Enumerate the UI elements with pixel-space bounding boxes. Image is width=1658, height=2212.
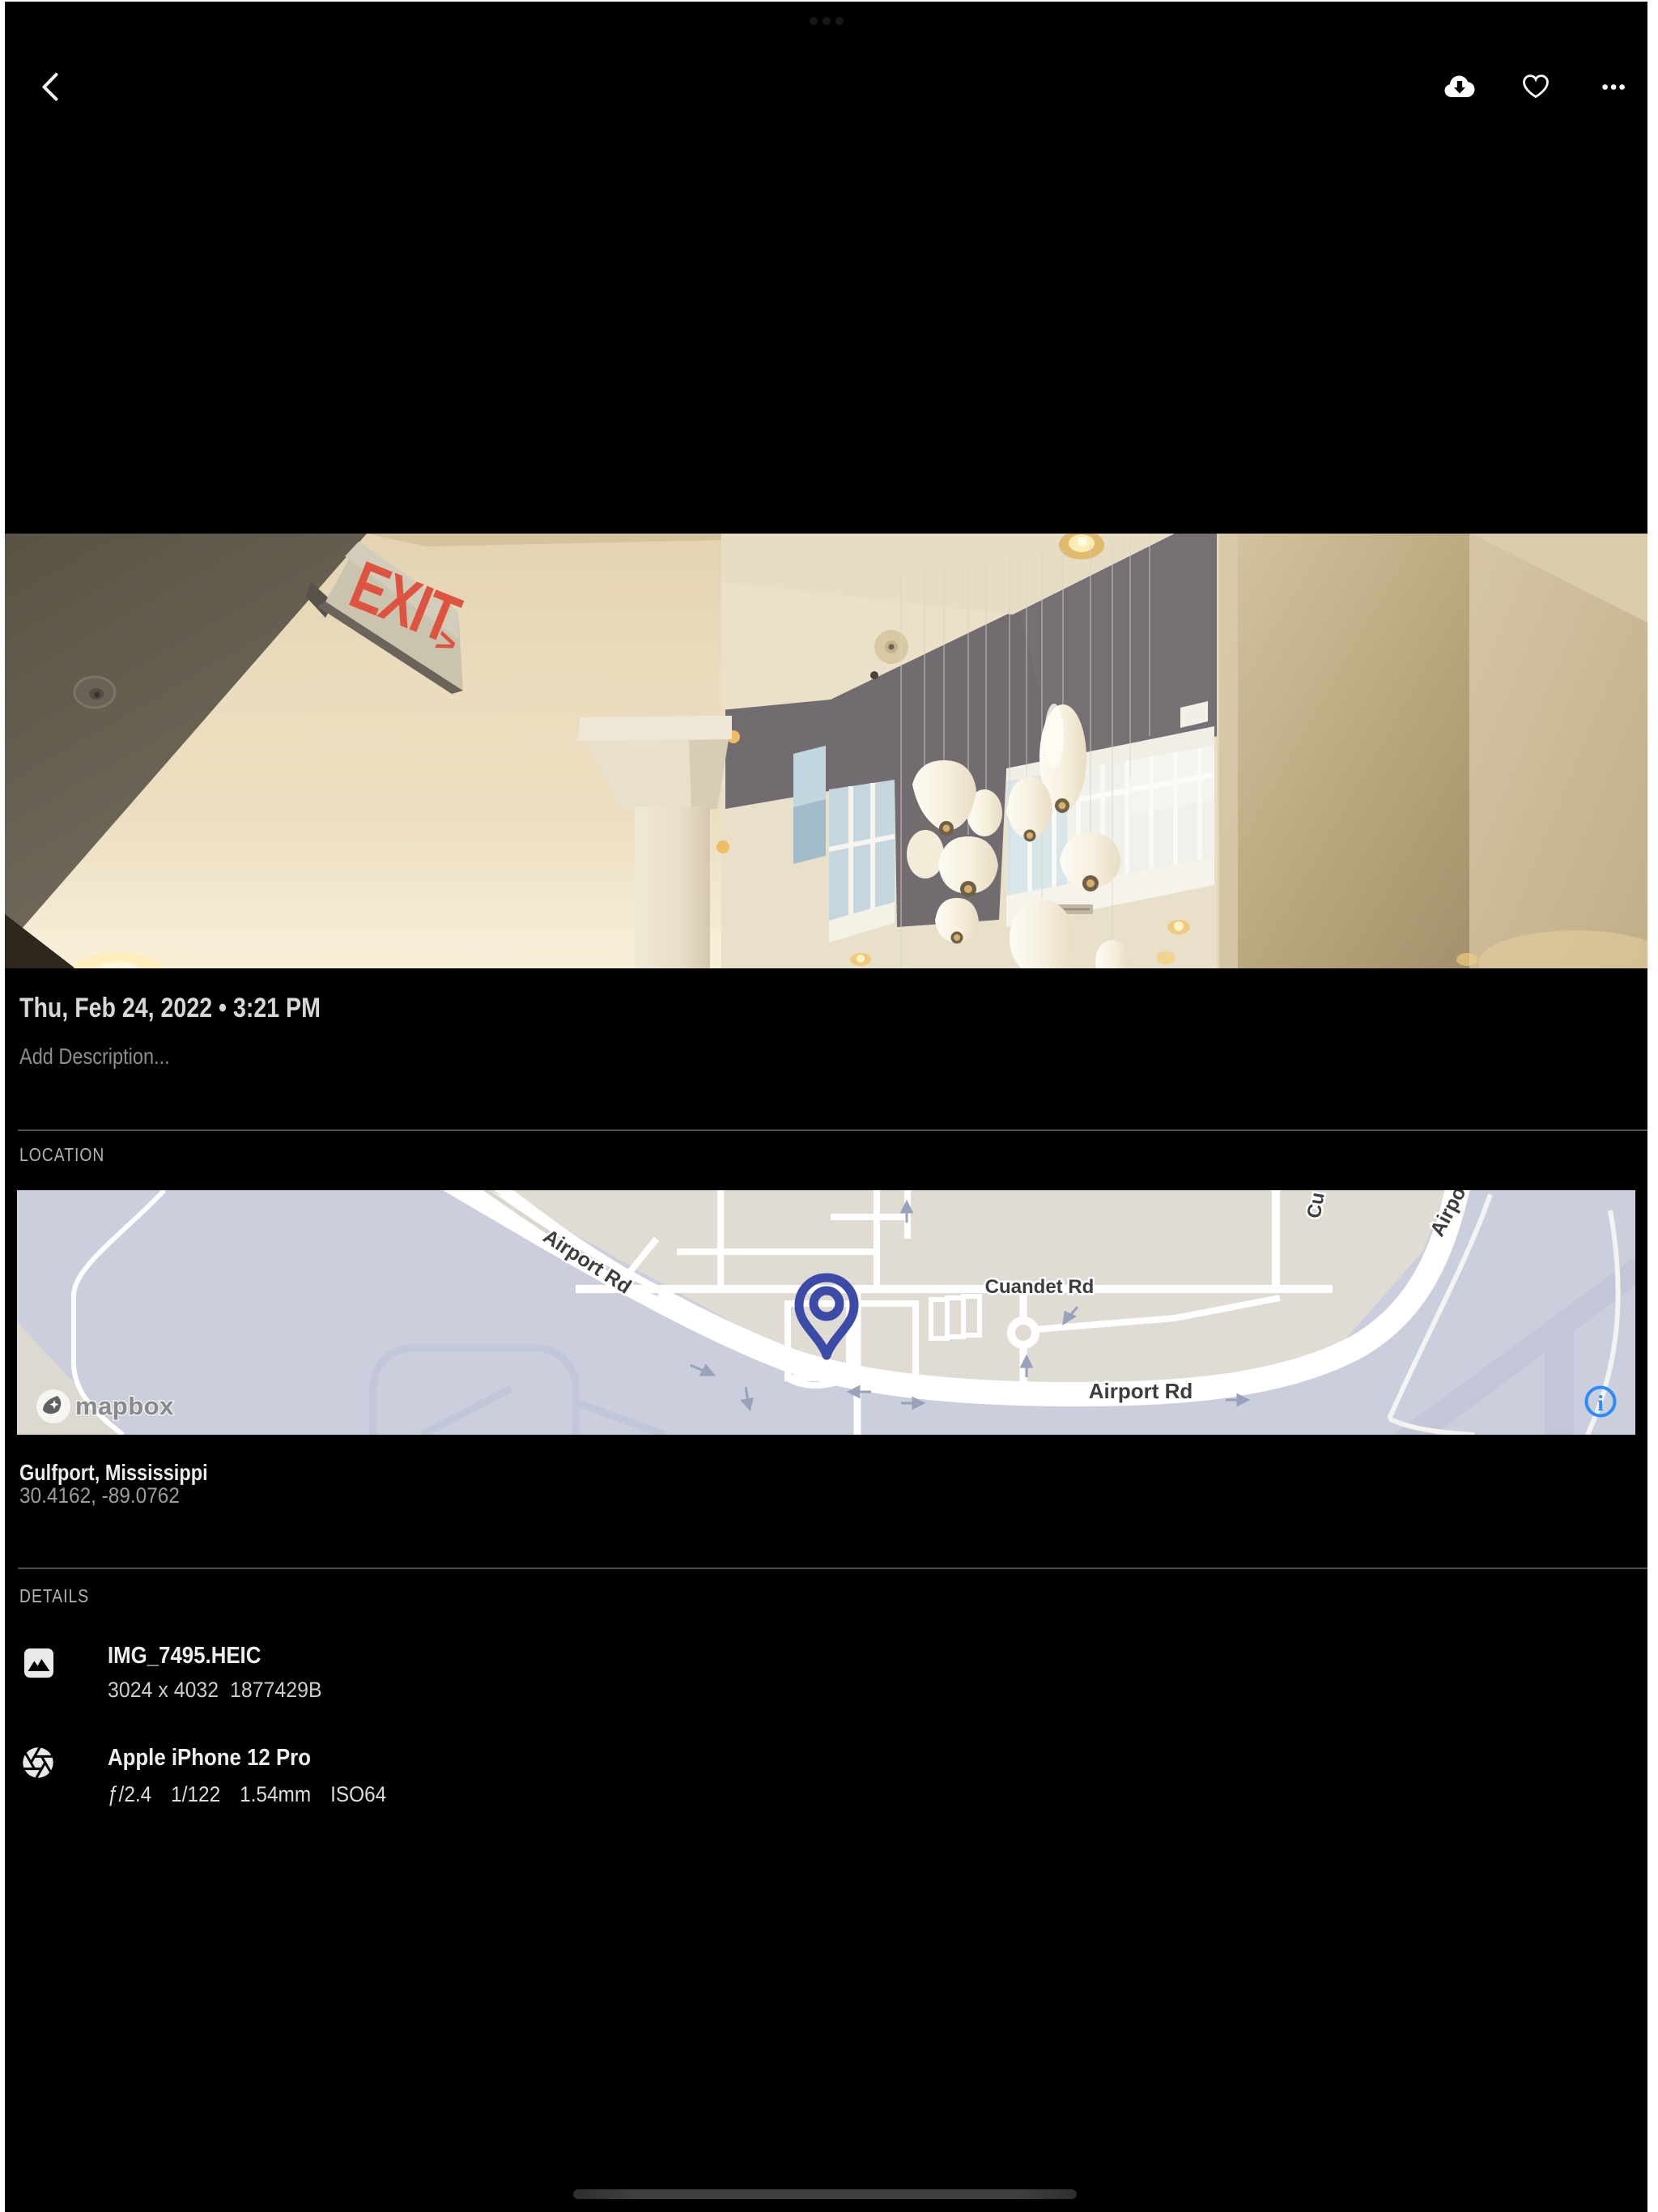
svg-text:Airport Rd: Airport Rd	[1089, 1379, 1193, 1403]
svg-text:i: i	[1597, 1391, 1604, 1415]
svg-text:Cuandet Rd: Cuandet Rd	[985, 1276, 1095, 1298]
svg-text:Cu: Cu	[1303, 1191, 1329, 1220]
svg-text:mapbox: mapbox	[75, 1392, 174, 1420]
